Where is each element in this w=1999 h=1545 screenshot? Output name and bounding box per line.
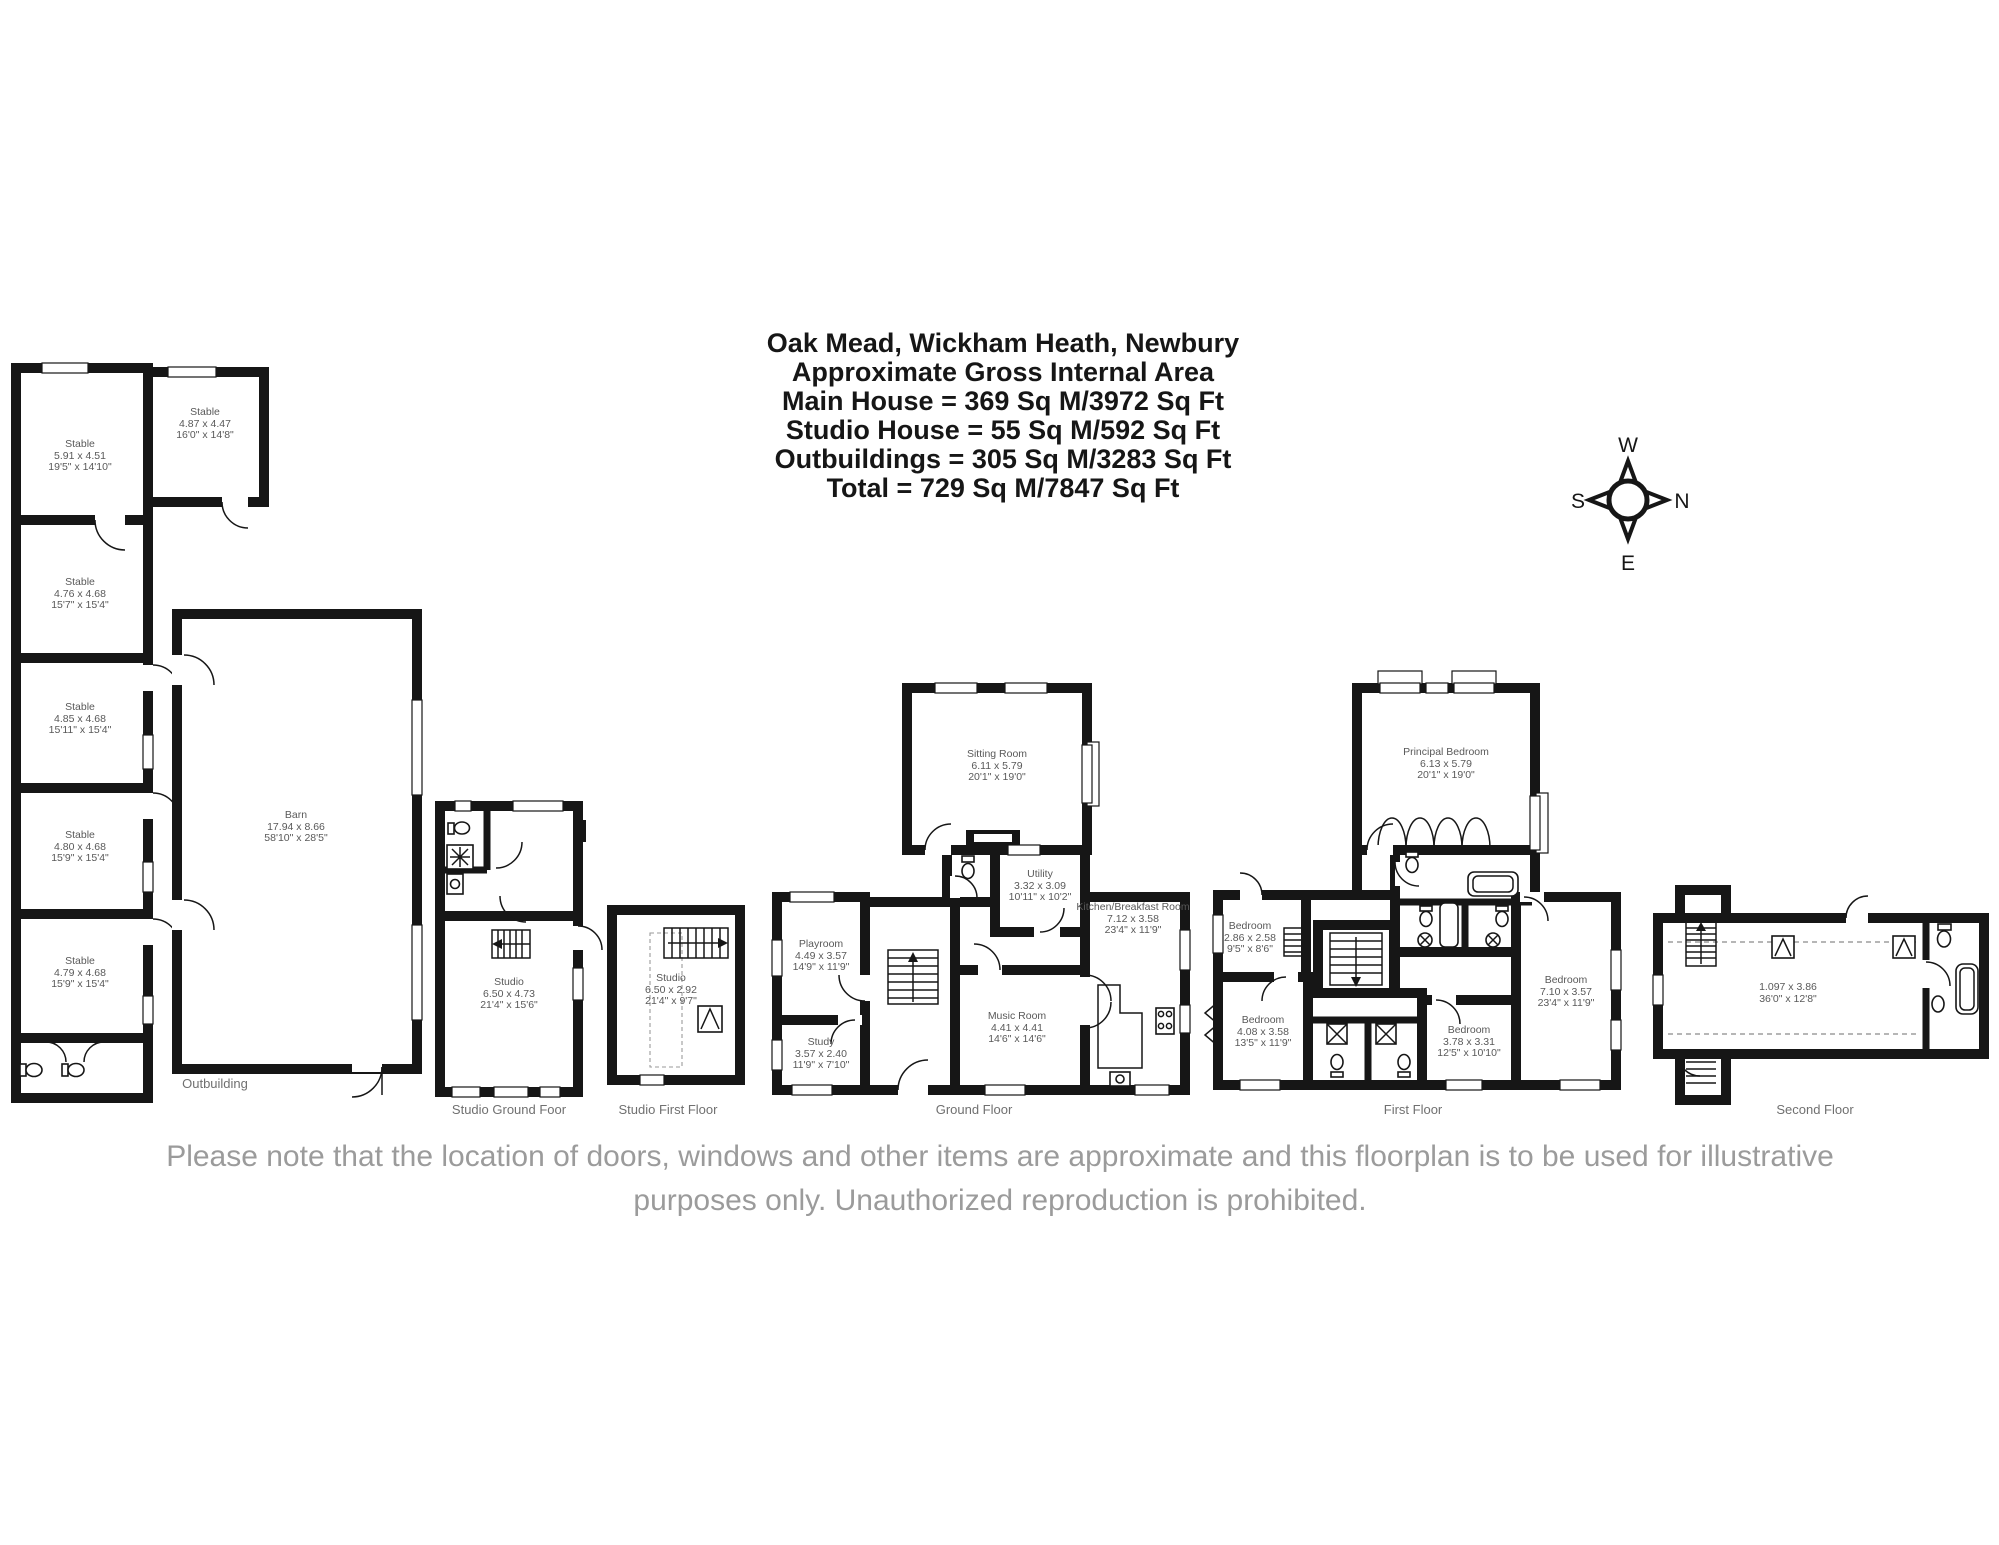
- bathtub-icon: [1440, 903, 1458, 947]
- window: [1611, 1020, 1621, 1050]
- window: [1530, 796, 1540, 850]
- sink-basin: [451, 880, 460, 889]
- toilet-icon: [448, 823, 454, 834]
- window: [1180, 930, 1190, 970]
- room-label-bedroom-4: Bedroom 7.10 x 3.57 23'4" x 11'9": [1538, 974, 1595, 1009]
- section-label-first-floor: First Floor: [1384, 1102, 1443, 1117]
- room-name: Music Room: [988, 1010, 1047, 1022]
- studio-ground-plan: [440, 801, 602, 1097]
- room-dim-imperial: 21'4" x 9'7": [645, 995, 697, 1007]
- door-gap: [95, 515, 125, 525]
- room-dim-imperial: 15'11" x 15'4": [49, 724, 112, 736]
- door-gap: [143, 919, 153, 945]
- window: [1611, 950, 1621, 990]
- window: [143, 862, 153, 892]
- room-name: Bedroom: [1545, 974, 1588, 986]
- window: [790, 892, 834, 902]
- floorplan-page: Oak Mead, Wickham Heath, Newbury Approxi…: [0, 0, 1999, 1545]
- toilet-icon: [1496, 906, 1508, 911]
- window: [792, 1085, 832, 1095]
- door-gap: [143, 665, 153, 691]
- door-gap: [860, 975, 870, 1001]
- section-label-ground-floor: Ground Floor: [936, 1102, 1013, 1117]
- toilet-icon: [1496, 912, 1508, 927]
- room-label-playroom: Playroom 4.49 x 3.57 14'9" x 11'9": [793, 938, 850, 973]
- toilet-icon: [1406, 852, 1418, 857]
- compass-letter-n: N: [1674, 490, 1689, 513]
- window: [42, 363, 88, 373]
- ground-floor-plan: [772, 683, 1190, 1095]
- floorplan-canvas: Oak Mead, Wickham Heath, Newbury Approxi…: [0, 0, 1999, 1545]
- toilet-icon: [1331, 1055, 1343, 1070]
- door-gap: [925, 845, 951, 855]
- toilet-icon: [1398, 1055, 1410, 1070]
- toilet-icon: [1420, 912, 1432, 927]
- compass-letter-s: S: [1571, 490, 1585, 513]
- toilet-icon: [1398, 1072, 1410, 1077]
- window: [772, 1040, 782, 1070]
- room-dim-imperial: 10'11" x 10'2": [1009, 891, 1072, 903]
- door-gap: [1846, 913, 1868, 923]
- window: [412, 700, 422, 795]
- compass-circle: [1609, 481, 1647, 519]
- room-dim-imperial: 15'9" x 15'4": [51, 852, 109, 864]
- toilet-icon: [1406, 858, 1418, 873]
- room-name: Studio: [656, 972, 686, 984]
- disclaimer-line-1: Please note that the location of doors, …: [166, 1140, 1834, 1173]
- section-label-studio-first: Studio First Floor: [619, 1102, 719, 1117]
- main-house-area: Main House = 369 Sq M/3972 Sq Ft: [782, 386, 1224, 416]
- room-dim-imperial: 14'6" x 14'6": [988, 1033, 1046, 1045]
- toilet-icon: [1420, 906, 1432, 911]
- toilet-icon: [1331, 1072, 1343, 1077]
- room-dim-imperial: 23'4" x 11'9": [1105, 924, 1162, 936]
- room-name: Stable: [65, 438, 95, 450]
- room-name: Bedroom: [1242, 1014, 1285, 1026]
- section-label-outbuilding: Outbuilding: [182, 1076, 248, 1091]
- disclaimer-text: Please note that the location of doors, …: [166, 1140, 1834, 1217]
- window: [640, 1075, 664, 1085]
- room-label-sitting-room: Sitting Room 6.11 x 5.79 20'1" x 19'0": [967, 748, 1027, 783]
- door-gap: [1367, 845, 1393, 855]
- bay-window: [1452, 671, 1496, 684]
- room-label-music-room: Music Room 4.41 x 4.41 14'6" x 14'6": [988, 1010, 1047, 1045]
- door-gap: [222, 497, 248, 507]
- room-name: Bedroom: [1448, 1024, 1491, 1036]
- studio-house-area: Studio House = 55 Sq M/592 Sq Ft: [786, 415, 1220, 445]
- window: [452, 1087, 480, 1097]
- room-label-bedroom-2: Bedroom 2.86 x 2.58 9'5" x 8'6": [1224, 920, 1276, 955]
- door-gap: [573, 926, 583, 950]
- door-gap: [172, 900, 182, 930]
- room-dim-imperial: 9'5" x 8'6": [1227, 943, 1273, 955]
- door-gap: [352, 1062, 382, 1072]
- room-name: Kitchen/Breakfast Room: [1076, 901, 1189, 913]
- room-dim-imperial: 16'0" x 14'8": [176, 429, 234, 441]
- total-area: Total = 729 Sq M/7847 Sq Ft: [827, 473, 1180, 503]
- window: [1240, 1080, 1280, 1090]
- section-label-second-floor: Second Floor: [1776, 1102, 1854, 1117]
- window: [1560, 1080, 1600, 1090]
- window: [1454, 683, 1494, 693]
- window: [540, 1087, 560, 1097]
- header-text: Oak Mead, Wickham Heath, Newbury Approxi…: [767, 328, 1239, 503]
- window: [1135, 1085, 1169, 1095]
- room-name: Study: [808, 1036, 836, 1048]
- window: [1008, 845, 1040, 855]
- window: [1213, 915, 1223, 953]
- window: [143, 996, 153, 1024]
- room-name: Stable: [65, 955, 95, 967]
- room-dim-imperial: 14'9" x 11'9": [793, 961, 850, 973]
- chimney-block: [578, 820, 586, 842]
- door-gap: [1395, 862, 1405, 886]
- room-dim-imperial: 36'0" x 12'8": [1759, 993, 1817, 1005]
- door-gap: [1922, 960, 1930, 988]
- room-dim-imperial: 20'1" x 19'0": [1417, 769, 1475, 781]
- section-label-studio-ground: Studio Ground Foor: [452, 1102, 567, 1117]
- room-dim-imperial: 13'5" x 11'9": [1235, 1037, 1292, 1049]
- room-dim-imperial: 15'7" x 15'4": [51, 599, 109, 611]
- room-label-second-floor-room: 1.097 x 3.86 36'0" x 12'8": [1759, 981, 1817, 1005]
- outbuildings-area: Outbuildings = 305 Sq M/3283 Sq Ft: [775, 444, 1232, 474]
- sink-basin: [1116, 1075, 1124, 1083]
- window: [143, 735, 153, 769]
- toilet-icon: [26, 1064, 42, 1077]
- room-name: Studio: [494, 976, 524, 988]
- compass-letter-e: E: [1621, 552, 1635, 575]
- area-subtitle: Approximate Gross Internal Area: [792, 357, 1215, 387]
- room-dim-imperial: 11'9" x 7'10": [793, 1059, 850, 1071]
- room-dim-imperial: 15'9" x 15'4": [51, 978, 109, 990]
- window: [985, 1085, 1025, 1095]
- room-dim-imperial: 12'5" x 10'10": [1437, 1047, 1501, 1059]
- door-gap: [1432, 995, 1456, 1005]
- window: [573, 968, 583, 1000]
- room-name: Stable: [65, 576, 95, 588]
- compass-letter-w: W: [1618, 434, 1638, 457]
- toilet-icon: [455, 822, 470, 834]
- window: [1082, 745, 1092, 803]
- window: [1426, 683, 1448, 693]
- window: [1380, 683, 1420, 693]
- door-gap: [1520, 892, 1544, 902]
- toilet-icon: [962, 864, 974, 879]
- fireplace-opening: [974, 834, 1012, 842]
- bay-window: [1378, 671, 1422, 684]
- hob-burner-lines: [450, 847, 470, 867]
- hall-walls: [865, 902, 955, 1090]
- room-name: Stable: [190, 406, 220, 418]
- window: [1653, 975, 1663, 1005]
- door-gap: [950, 876, 960, 898]
- room-name: Barn: [285, 809, 307, 821]
- door-gap: [1034, 927, 1060, 937]
- dressing-corridor-walls: [1357, 850, 1395, 895]
- window: [772, 940, 782, 976]
- room-label-bedroom-3: Bedroom 4.08 x 3.58 13'5" x 11'9": [1235, 1014, 1292, 1049]
- window: [1180, 1005, 1190, 1033]
- room-name: Stable: [65, 829, 95, 841]
- room-name: Principal Bedroom: [1403, 746, 1489, 758]
- toilet-icon: [962, 856, 974, 862]
- toilet-icon: [1938, 924, 1951, 930]
- second-floor-plan: [1653, 890, 1984, 1100]
- window: [412, 925, 422, 1020]
- room-dim-imperial: 23'4" x 11'9": [1538, 997, 1595, 1009]
- room-name: Bedroom: [1229, 920, 1272, 932]
- window: [935, 683, 977, 693]
- door-gap: [172, 655, 182, 685]
- window: [168, 367, 216, 377]
- room-name: Playroom: [799, 938, 844, 950]
- window: [513, 801, 563, 811]
- toilet-icon: [62, 1064, 68, 1076]
- room-dim-imperial: 19'5" x 14'10": [48, 461, 112, 473]
- toilet-icon: [20, 1064, 26, 1076]
- toilet-icon: [68, 1064, 84, 1077]
- stair-box-bottom-walls: [1680, 1054, 1726, 1100]
- room-name: Stable: [65, 701, 95, 713]
- toilet-icon: [1938, 931, 1951, 947]
- door-gap: [143, 793, 153, 819]
- window: [1005, 683, 1047, 693]
- door-gap: [1240, 890, 1262, 900]
- window: [494, 1087, 528, 1097]
- door-gap: [1080, 977, 1090, 1025]
- compass-rose: W S N E: [1571, 434, 1690, 575]
- room-dim-imperial: 58'10" x 28'5": [264, 832, 328, 844]
- sink-icon: [1932, 996, 1944, 1012]
- room-name: Sitting Room: [967, 748, 1027, 760]
- door-gap: [978, 965, 1002, 975]
- room-dim-metric: 1.097 x 3.86: [1759, 981, 1817, 993]
- disclaimer-line-2: purposes only. Unauthorized reproduction…: [633, 1184, 1366, 1217]
- room-dim-imperial: 21'4" x 15'6": [480, 999, 538, 1011]
- door-gap: [898, 1085, 928, 1095]
- address-line: Oak Mead, Wickham Heath, Newbury: [767, 328, 1239, 358]
- room-name: Utility: [1027, 868, 1053, 880]
- window: [455, 801, 471, 811]
- window: [1446, 1080, 1482, 1090]
- room-dim-imperial: 20'1" x 19'0": [968, 771, 1026, 783]
- studio-first-wardrobe: [698, 1006, 722, 1032]
